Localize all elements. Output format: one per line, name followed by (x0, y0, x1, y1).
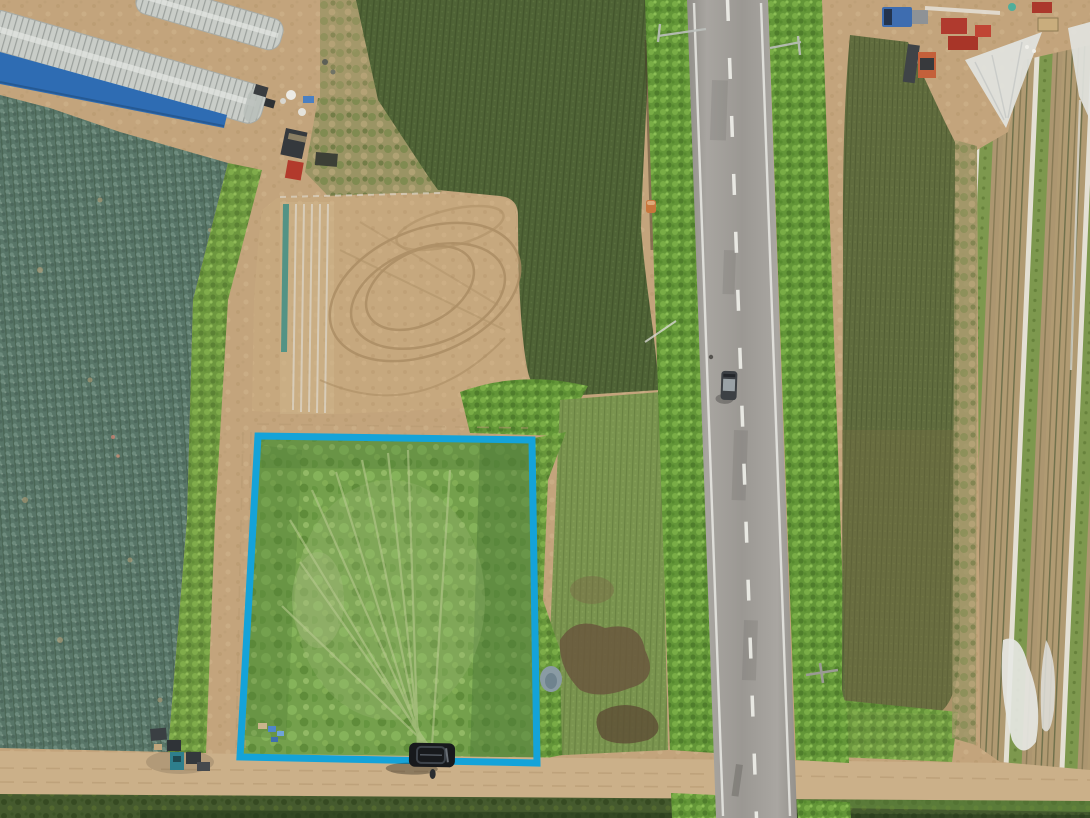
red-machine (285, 160, 304, 181)
tractor-cab (920, 58, 934, 70)
debris (331, 70, 336, 75)
aerial-photo-viewport (0, 0, 1090, 818)
pallet (154, 744, 162, 750)
blue-tarp-item (303, 96, 314, 103)
implement (197, 762, 210, 771)
road-debris (709, 355, 713, 359)
implement (167, 740, 181, 751)
highlighted-parcel (240, 436, 537, 763)
white-umbrella (286, 90, 296, 100)
pallet-stack (315, 152, 338, 167)
road-hedgerow-right-lower (797, 800, 851, 818)
netted-crop-rows (977, 45, 1090, 770)
road-hedgerow-left-lower (671, 793, 717, 818)
mud-patch (570, 576, 614, 604)
tractor-cab (173, 756, 181, 762)
teal-equipment (1008, 3, 1016, 11)
field-margin-strip (952, 140, 977, 745)
road-corridor (645, 0, 851, 818)
white-umbrella (298, 108, 306, 116)
tan-crate (1038, 18, 1058, 31)
debris (322, 59, 328, 65)
mid-green-field (545, 392, 668, 756)
orange-bale-top (647, 201, 655, 205)
aerial-photo (0, 0, 1090, 818)
white-marker (1025, 45, 1029, 49)
gray-trailer (912, 10, 928, 24)
pond-deep (545, 673, 557, 689)
truck-cab (884, 9, 892, 25)
olive-field-dry-half (842, 430, 958, 714)
van-windshield (723, 374, 735, 377)
implement (150, 728, 167, 741)
white-marker (1032, 49, 1036, 53)
van-roof (723, 379, 735, 391)
